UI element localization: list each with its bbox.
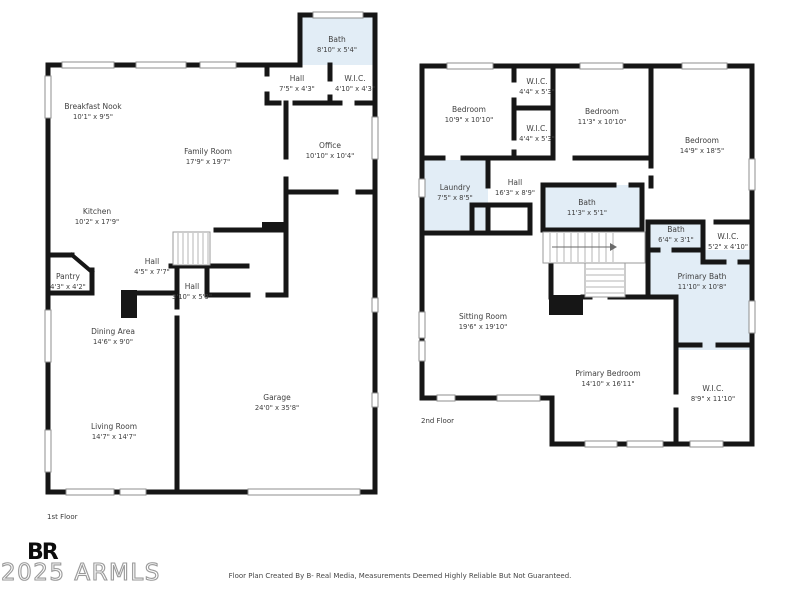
stairs-first-floor: [173, 232, 210, 265]
footer-credit: Floor Plan Created By B- Real Media, Mea…: [0, 572, 800, 580]
room-label-wic-1f: W.I.C. 4'10" x 4'3": [335, 74, 375, 94]
room-label-breakfast-nook: Breakfast Nook 10'1" x 9'5": [64, 102, 121, 122]
room-label-office: Office 10'10" x 10'4": [306, 141, 355, 161]
room-label-hall-top-1f: Hall 7'5" x 4'3": [279, 74, 315, 94]
first-floor-label: 1st Floor: [47, 513, 78, 521]
room-label-dining-area: Dining Area 14'6" x 9'0": [91, 327, 135, 347]
room-label-bath-small: Bath 6'4" x 3'1": [658, 225, 694, 245]
room-label-primary-bedroom: Primary Bedroom 14'10" x 16'11": [575, 369, 640, 389]
second-floor-label: 2nd Floor: [421, 417, 454, 425]
wall-pillar: [549, 295, 583, 315]
floor-plan-page: Bath 8'10" x 5'4" Hall 7'5" x 4'3" W.I.C…: [0, 0, 800, 600]
room-label-pantry: Pantry 4'3" x 4'2": [50, 272, 86, 292]
wall-stub: [121, 290, 137, 318]
room-label-wic-top: W.I.C. 4'4" x 5'3": [519, 77, 555, 97]
room-label-family-room: Family Room 17'9" x 19'7": [184, 147, 232, 167]
room-label-kitchen: Kitchen 10'2" x 17'9": [75, 207, 119, 227]
room-label-garage: Garage 24'0" x 35'8": [255, 393, 299, 413]
room-label-bath-1f: Bath 8'10" x 5'4": [317, 35, 357, 55]
room-label-bedroom-3: Bedroom 14'9" x 18'5": [680, 136, 724, 156]
room-label-bedroom-2: Bedroom 11'3" x 10'10": [578, 107, 627, 127]
room-label-wic-bottom: W.I.C. 4'4" x 5'3": [519, 124, 555, 144]
room-label-primary-bath: Primary Bath 11'10" x 10'8": [678, 272, 727, 292]
room-label-bath-2f: Bath 11'3" x 5'1": [567, 198, 607, 218]
stairs-second-floor: [543, 232, 645, 297]
room-label-sitting-room: Sitting Room 19'6" x 19'10": [459, 312, 508, 332]
pantry-door-wall: [72, 255, 92, 272]
room-label-bedroom-1: Bedroom 10'9" x 10'10": [445, 105, 494, 125]
floor-plan-drawing: [0, 0, 800, 600]
room-label-hall-mid-1f: Hall 4'5" x 7'7": [134, 257, 170, 277]
room-label-wic-2f: W.I.C. 5'2" x 4'10": [708, 232, 748, 252]
room-label-wic-primary: W.I.C. 8'9" x 11'10": [691, 384, 735, 404]
primary-bath-fill: [648, 250, 752, 350]
room-label-laundry: Laundry 7'5" x 8'5": [437, 183, 473, 203]
room-label-living-room: Living Room 14'7" x 14'7": [91, 422, 137, 442]
room-label-hall-2f: Hall 16'3" x 8'9": [495, 178, 535, 198]
room-label-hall-low-1f: Hall 3'10" x 5'9": [172, 282, 212, 302]
wall-notch: [262, 222, 286, 231]
